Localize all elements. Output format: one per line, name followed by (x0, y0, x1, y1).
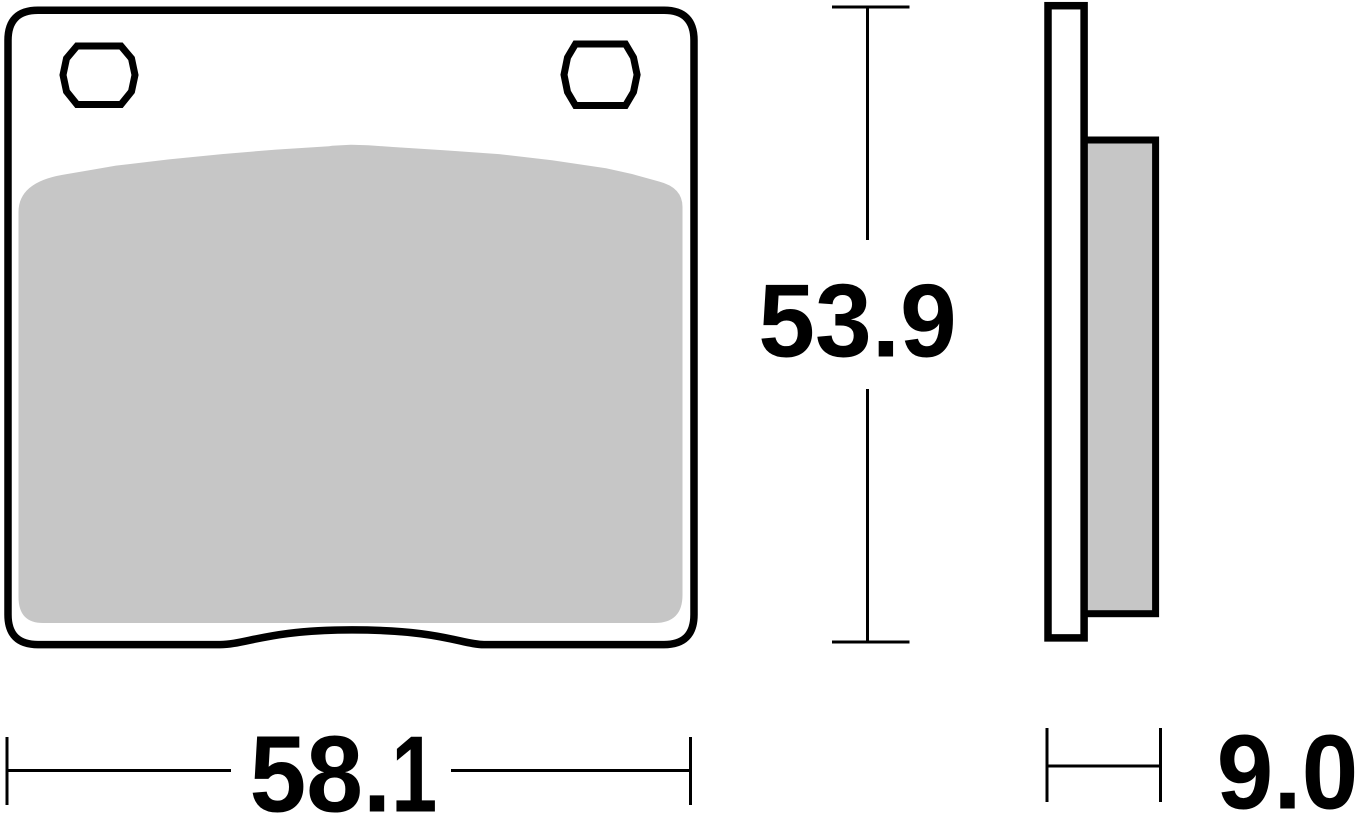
svg-text:58.: 58. (250, 715, 392, 813)
svg-text:9.0: 9.0 (1217, 713, 1355, 813)
svg-text:53.9: 53.9 (758, 263, 956, 379)
svg-text:1: 1 (391, 715, 437, 813)
